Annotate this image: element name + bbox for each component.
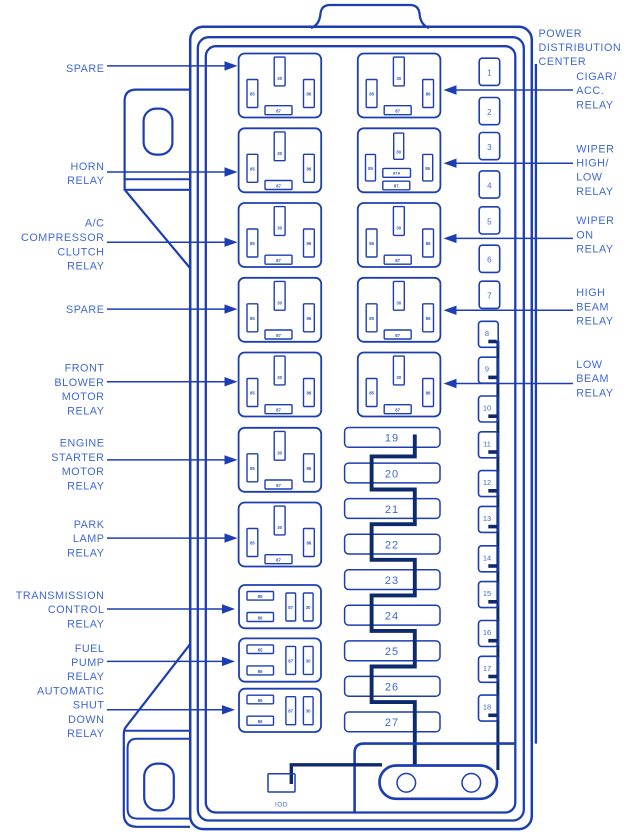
svg-text:86: 86 bbox=[307, 241, 312, 246]
svg-text:8: 8 bbox=[485, 329, 489, 338]
svg-text:IOD: IOD bbox=[275, 802, 288, 809]
svg-text:85: 85 bbox=[258, 594, 263, 599]
svg-text:86: 86 bbox=[425, 166, 430, 171]
svg-text:85: 85 bbox=[250, 241, 255, 246]
svg-text:85: 85 bbox=[250, 541, 255, 546]
svg-text:CIGAR/: CIGAR/ bbox=[576, 71, 617, 83]
svg-text:DOWN: DOWN bbox=[68, 714, 104, 726]
svg-text:A/C: A/C bbox=[85, 218, 105, 230]
svg-text:85: 85 bbox=[368, 166, 373, 171]
svg-text:PARK: PARK bbox=[74, 519, 105, 531]
svg-text:FRONT: FRONT bbox=[65, 363, 105, 375]
svg-text:30: 30 bbox=[396, 149, 401, 154]
svg-text:30: 30 bbox=[306, 658, 311, 663]
svg-text:LAMP: LAMP bbox=[73, 533, 105, 545]
svg-text:BEAM: BEAM bbox=[576, 301, 609, 313]
svg-text:BEAM: BEAM bbox=[576, 373, 609, 385]
svg-text:SPARE: SPARE bbox=[66, 304, 105, 316]
svg-text:85: 85 bbox=[250, 316, 255, 321]
svg-text:24: 24 bbox=[385, 611, 399, 623]
svg-text:86: 86 bbox=[426, 316, 431, 321]
svg-text:87: 87 bbox=[395, 109, 400, 114]
svg-text:13: 13 bbox=[483, 514, 491, 523]
svg-text:86: 86 bbox=[307, 391, 312, 396]
svg-text:30: 30 bbox=[277, 76, 282, 81]
svg-text:87: 87 bbox=[276, 184, 281, 189]
svg-text:85: 85 bbox=[250, 466, 255, 471]
svg-text:87: 87 bbox=[276, 408, 281, 413]
svg-text:RELAY: RELAY bbox=[576, 186, 613, 198]
svg-text:85: 85 bbox=[258, 648, 263, 653]
svg-text:HIGH: HIGH bbox=[576, 287, 605, 299]
svg-text:30: 30 bbox=[306, 605, 311, 610]
svg-text:RELAY: RELAY bbox=[67, 406, 104, 418]
svg-text:FUEL: FUEL bbox=[75, 643, 105, 655]
svg-text:WIPER: WIPER bbox=[576, 143, 614, 155]
svg-text:ON: ON bbox=[576, 229, 593, 241]
svg-text:85: 85 bbox=[369, 92, 374, 97]
svg-text:4: 4 bbox=[487, 181, 492, 190]
svg-text:22: 22 bbox=[385, 539, 399, 551]
svg-text:87A: 87A bbox=[393, 171, 400, 176]
svg-text:85: 85 bbox=[369, 316, 374, 321]
svg-text:RELAY: RELAY bbox=[67, 618, 104, 630]
svg-text:86: 86 bbox=[258, 669, 263, 674]
svg-text:RELAY: RELAY bbox=[67, 728, 104, 740]
svg-text:14: 14 bbox=[483, 553, 491, 562]
svg-text:2: 2 bbox=[487, 108, 492, 117]
svg-text:17: 17 bbox=[483, 664, 491, 673]
svg-text:STARTER: STARTER bbox=[51, 452, 104, 464]
svg-text:COMPRESSOR: COMPRESSOR bbox=[21, 232, 105, 244]
svg-text:BLOWER: BLOWER bbox=[54, 377, 104, 389]
svg-text:86: 86 bbox=[307, 166, 312, 171]
svg-text:30: 30 bbox=[277, 300, 282, 305]
svg-text:HORN: HORN bbox=[71, 161, 105, 173]
svg-text:86: 86 bbox=[307, 466, 312, 471]
svg-text:30: 30 bbox=[396, 76, 401, 81]
svg-text:CLUTCH: CLUTCH bbox=[57, 246, 104, 258]
svg-text:87: 87 bbox=[395, 258, 400, 263]
svg-text:21: 21 bbox=[385, 504, 399, 516]
svg-text:11: 11 bbox=[483, 439, 491, 448]
svg-text:PUMP: PUMP bbox=[71, 657, 104, 669]
svg-text:AUTOMATIC: AUTOMATIC bbox=[37, 685, 105, 697]
svg-text:87: 87 bbox=[288, 605, 293, 610]
svg-text:30: 30 bbox=[396, 375, 401, 380]
svg-text:85: 85 bbox=[250, 166, 255, 171]
svg-text:ACC.: ACC. bbox=[576, 85, 604, 97]
svg-text:LOW: LOW bbox=[576, 172, 603, 184]
svg-text:9: 9 bbox=[485, 365, 489, 374]
svg-text:87: 87 bbox=[394, 183, 399, 188]
svg-text:RELAY: RELAY bbox=[576, 387, 613, 399]
svg-text:25: 25 bbox=[385, 646, 399, 658]
svg-text:87: 87 bbox=[395, 333, 400, 338]
svg-text:30: 30 bbox=[277, 450, 282, 455]
svg-text:87: 87 bbox=[288, 658, 293, 663]
svg-text:SHUT: SHUT bbox=[73, 700, 105, 712]
svg-text:MOTOR: MOTOR bbox=[62, 466, 105, 478]
svg-text:ENGINE: ENGINE bbox=[60, 438, 105, 450]
svg-text:1: 1 bbox=[487, 69, 492, 78]
svg-text:26: 26 bbox=[385, 682, 399, 694]
svg-text:POWER: POWER bbox=[539, 28, 583, 40]
svg-text:87: 87 bbox=[276, 258, 281, 263]
svg-text:86: 86 bbox=[307, 541, 312, 546]
svg-text:SPARE: SPARE bbox=[66, 63, 105, 75]
svg-text:18: 18 bbox=[483, 703, 491, 712]
svg-text:86: 86 bbox=[307, 316, 312, 321]
svg-text:16: 16 bbox=[483, 628, 491, 637]
svg-text:30: 30 bbox=[277, 525, 282, 530]
svg-text:12: 12 bbox=[483, 478, 491, 487]
svg-text:CONTROL: CONTROL bbox=[48, 604, 105, 616]
svg-text:RELAY: RELAY bbox=[576, 316, 613, 328]
svg-text:MOTOR: MOTOR bbox=[62, 391, 105, 403]
svg-text:7: 7 bbox=[487, 292, 492, 301]
svg-text:HIGH/: HIGH/ bbox=[576, 158, 609, 170]
svg-text:RELAY: RELAY bbox=[67, 671, 104, 683]
svg-text:RELAY: RELAY bbox=[67, 261, 104, 273]
svg-text:87: 87 bbox=[395, 408, 400, 413]
svg-text:LOW: LOW bbox=[576, 359, 603, 371]
svg-text:RELAY: RELAY bbox=[67, 480, 104, 492]
svg-text:19: 19 bbox=[385, 433, 399, 445]
svg-text:30: 30 bbox=[396, 300, 401, 305]
svg-text:10: 10 bbox=[483, 404, 491, 413]
svg-text:30: 30 bbox=[277, 375, 282, 380]
svg-text:86: 86 bbox=[426, 92, 431, 97]
svg-text:6: 6 bbox=[487, 256, 492, 265]
svg-text:TRANSMISSION: TRANSMISSION bbox=[16, 590, 105, 602]
svg-text:87: 87 bbox=[276, 558, 281, 563]
svg-text:87: 87 bbox=[276, 109, 281, 114]
svg-text:RELAY: RELAY bbox=[67, 547, 104, 559]
svg-text:3: 3 bbox=[487, 143, 492, 152]
svg-text:85: 85 bbox=[369, 391, 374, 396]
svg-text:RELAY: RELAY bbox=[576, 244, 613, 256]
svg-text:15: 15 bbox=[483, 589, 491, 598]
svg-text:WIPER: WIPER bbox=[576, 215, 614, 227]
svg-text:CENTER: CENTER bbox=[539, 56, 587, 68]
svg-text:86: 86 bbox=[426, 391, 431, 396]
svg-text:86: 86 bbox=[307, 92, 312, 97]
svg-text:86: 86 bbox=[426, 241, 431, 246]
svg-text:85: 85 bbox=[250, 391, 255, 396]
svg-text:5: 5 bbox=[487, 217, 492, 226]
svg-text:27: 27 bbox=[385, 717, 399, 729]
svg-text:20: 20 bbox=[385, 468, 399, 480]
svg-text:DISTRIBUTION: DISTRIBUTION bbox=[539, 42, 622, 54]
svg-text:86: 86 bbox=[258, 719, 263, 724]
svg-text:30: 30 bbox=[277, 151, 282, 156]
svg-text:30: 30 bbox=[277, 226, 282, 231]
svg-text:23: 23 bbox=[385, 575, 399, 587]
svg-text:85: 85 bbox=[250, 92, 255, 97]
svg-text:RELAY: RELAY bbox=[576, 99, 613, 111]
svg-text:30: 30 bbox=[396, 226, 401, 231]
svg-text:87: 87 bbox=[276, 483, 281, 488]
svg-text:87: 87 bbox=[276, 333, 281, 338]
svg-text:85: 85 bbox=[369, 241, 374, 246]
svg-text:85: 85 bbox=[258, 698, 263, 703]
svg-text:86: 86 bbox=[258, 615, 263, 620]
svg-text:87: 87 bbox=[288, 709, 293, 714]
svg-text:RELAY: RELAY bbox=[67, 175, 104, 187]
svg-text:30: 30 bbox=[306, 709, 311, 714]
